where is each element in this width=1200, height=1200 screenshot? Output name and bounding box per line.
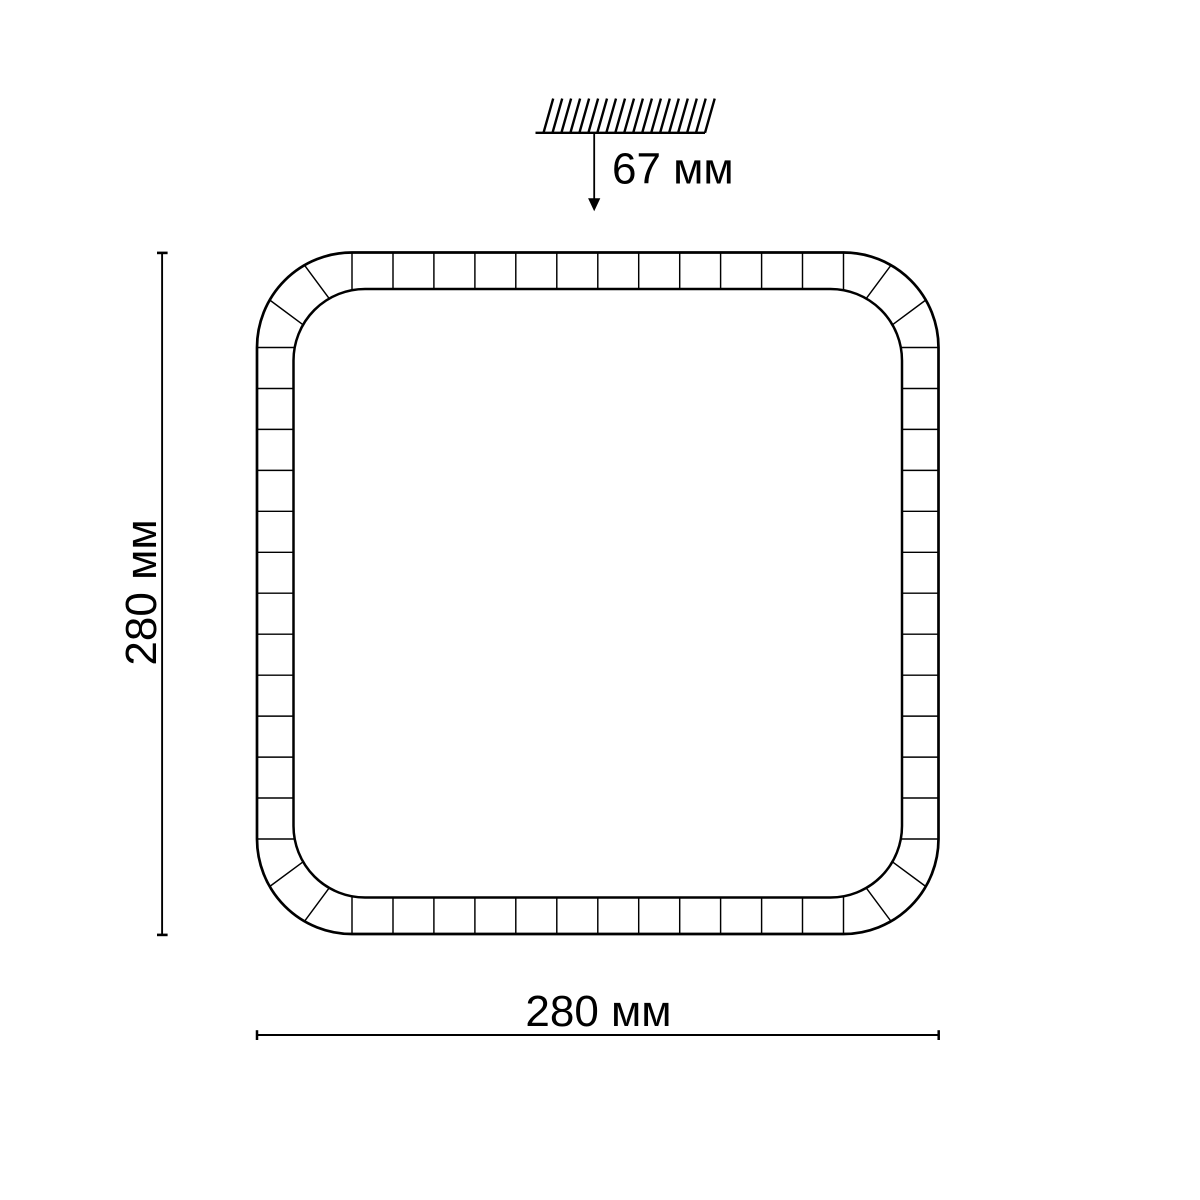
svg-text:67 мм: 67 мм	[612, 145, 734, 194]
svg-text:280 мм: 280 мм	[525, 987, 671, 1036]
svg-text:280 мм: 280 мм	[117, 519, 166, 665]
